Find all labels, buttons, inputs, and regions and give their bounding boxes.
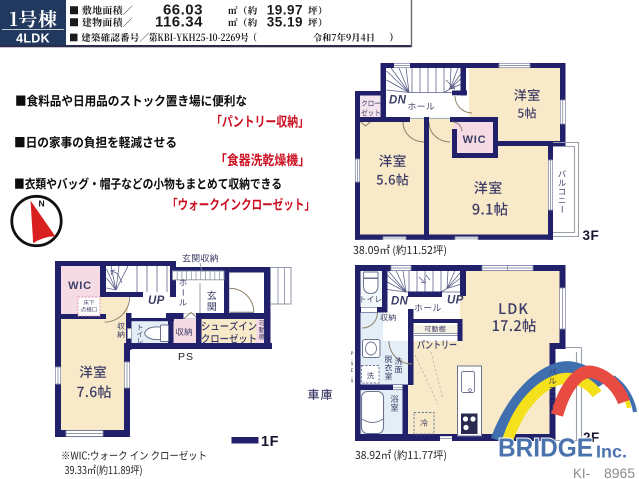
- svg-text:4LDK: 4LDK: [16, 32, 50, 46]
- svg-text:KI-: KI-: [573, 465, 590, 479]
- svg-text:116.34: 116.34: [155, 14, 203, 31]
- svg-text:DN: DN: [391, 296, 409, 308]
- svg-text:UP: UP: [148, 295, 165, 307]
- svg-text:BRIDGE: BRIDGE: [498, 433, 593, 463]
- svg-text:35.19: 35.19: [267, 15, 303, 30]
- svg-text:8965: 8965: [604, 465, 635, 479]
- svg-text:Inc.: Inc.: [596, 442, 627, 462]
- svg-text:WIC: WIC: [463, 134, 487, 146]
- svg-text:N: N: [39, 199, 45, 209]
- svg-text:DN: DN: [389, 95, 407, 107]
- svg-text:3F: 3F: [583, 228, 600, 243]
- svg-text:1F: 1F: [261, 434, 279, 450]
- svg-text:UP: UP: [447, 295, 464, 307]
- svg-text:WIC: WIC: [68, 280, 92, 292]
- svg-text:PS: PS: [178, 351, 194, 363]
